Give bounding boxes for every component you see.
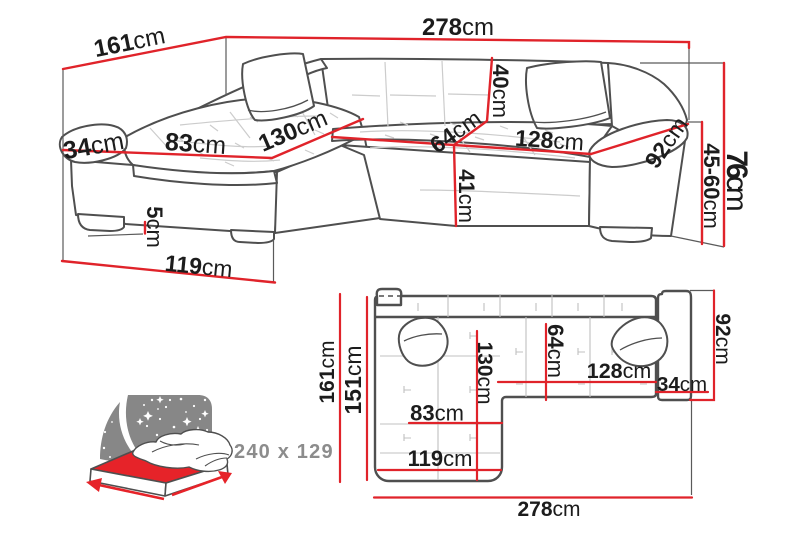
svg-text:83cm: 83cm bbox=[410, 401, 464, 426]
svg-text:161cm: 161cm bbox=[316, 340, 339, 403]
svg-text:119cm: 119cm bbox=[408, 446, 473, 471]
svg-text:41cm: 41cm bbox=[454, 169, 479, 223]
svg-text:64cm: 64cm bbox=[543, 324, 568, 378]
svg-text:240 x 129: 240 x 129 bbox=[234, 441, 334, 463]
svg-text:130cm: 130cm bbox=[473, 341, 496, 404]
svg-text:40cm: 40cm bbox=[488, 64, 513, 118]
svg-text:278cm: 278cm bbox=[422, 14, 494, 41]
svg-text:128cm: 128cm bbox=[514, 125, 585, 156]
svg-text:34cm: 34cm bbox=[657, 373, 707, 396]
svg-text:278cm: 278cm bbox=[517, 498, 580, 521]
svg-text:83cm: 83cm bbox=[164, 128, 227, 160]
svg-text:76cm: 76cm bbox=[720, 150, 753, 210]
svg-text:5cm: 5cm bbox=[142, 206, 167, 248]
svg-text:151cm: 151cm bbox=[340, 345, 366, 414]
svg-text:92cm: 92cm bbox=[711, 313, 734, 364]
svg-text:128cm: 128cm bbox=[587, 359, 652, 383]
